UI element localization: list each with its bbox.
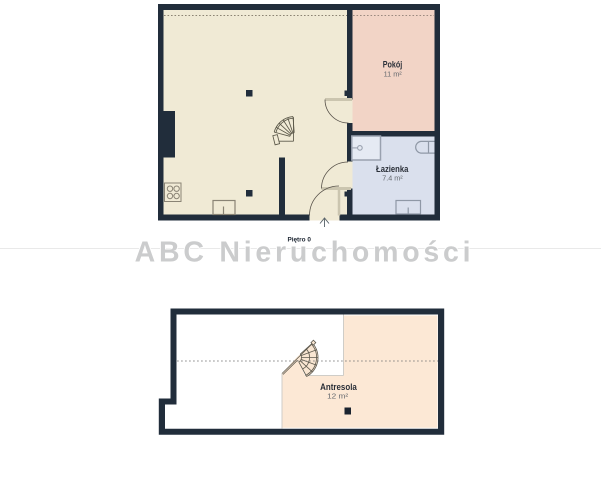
svg-text:11 m²: 11 m² [384,69,403,78]
svg-text:Pokój: Pokój [383,60,403,70]
svg-text:Antresola: Antresola [320,382,358,392]
svg-text:12 m²: 12 m² [327,391,349,400]
svg-text:7.4 m²: 7.4 m² [382,173,403,182]
